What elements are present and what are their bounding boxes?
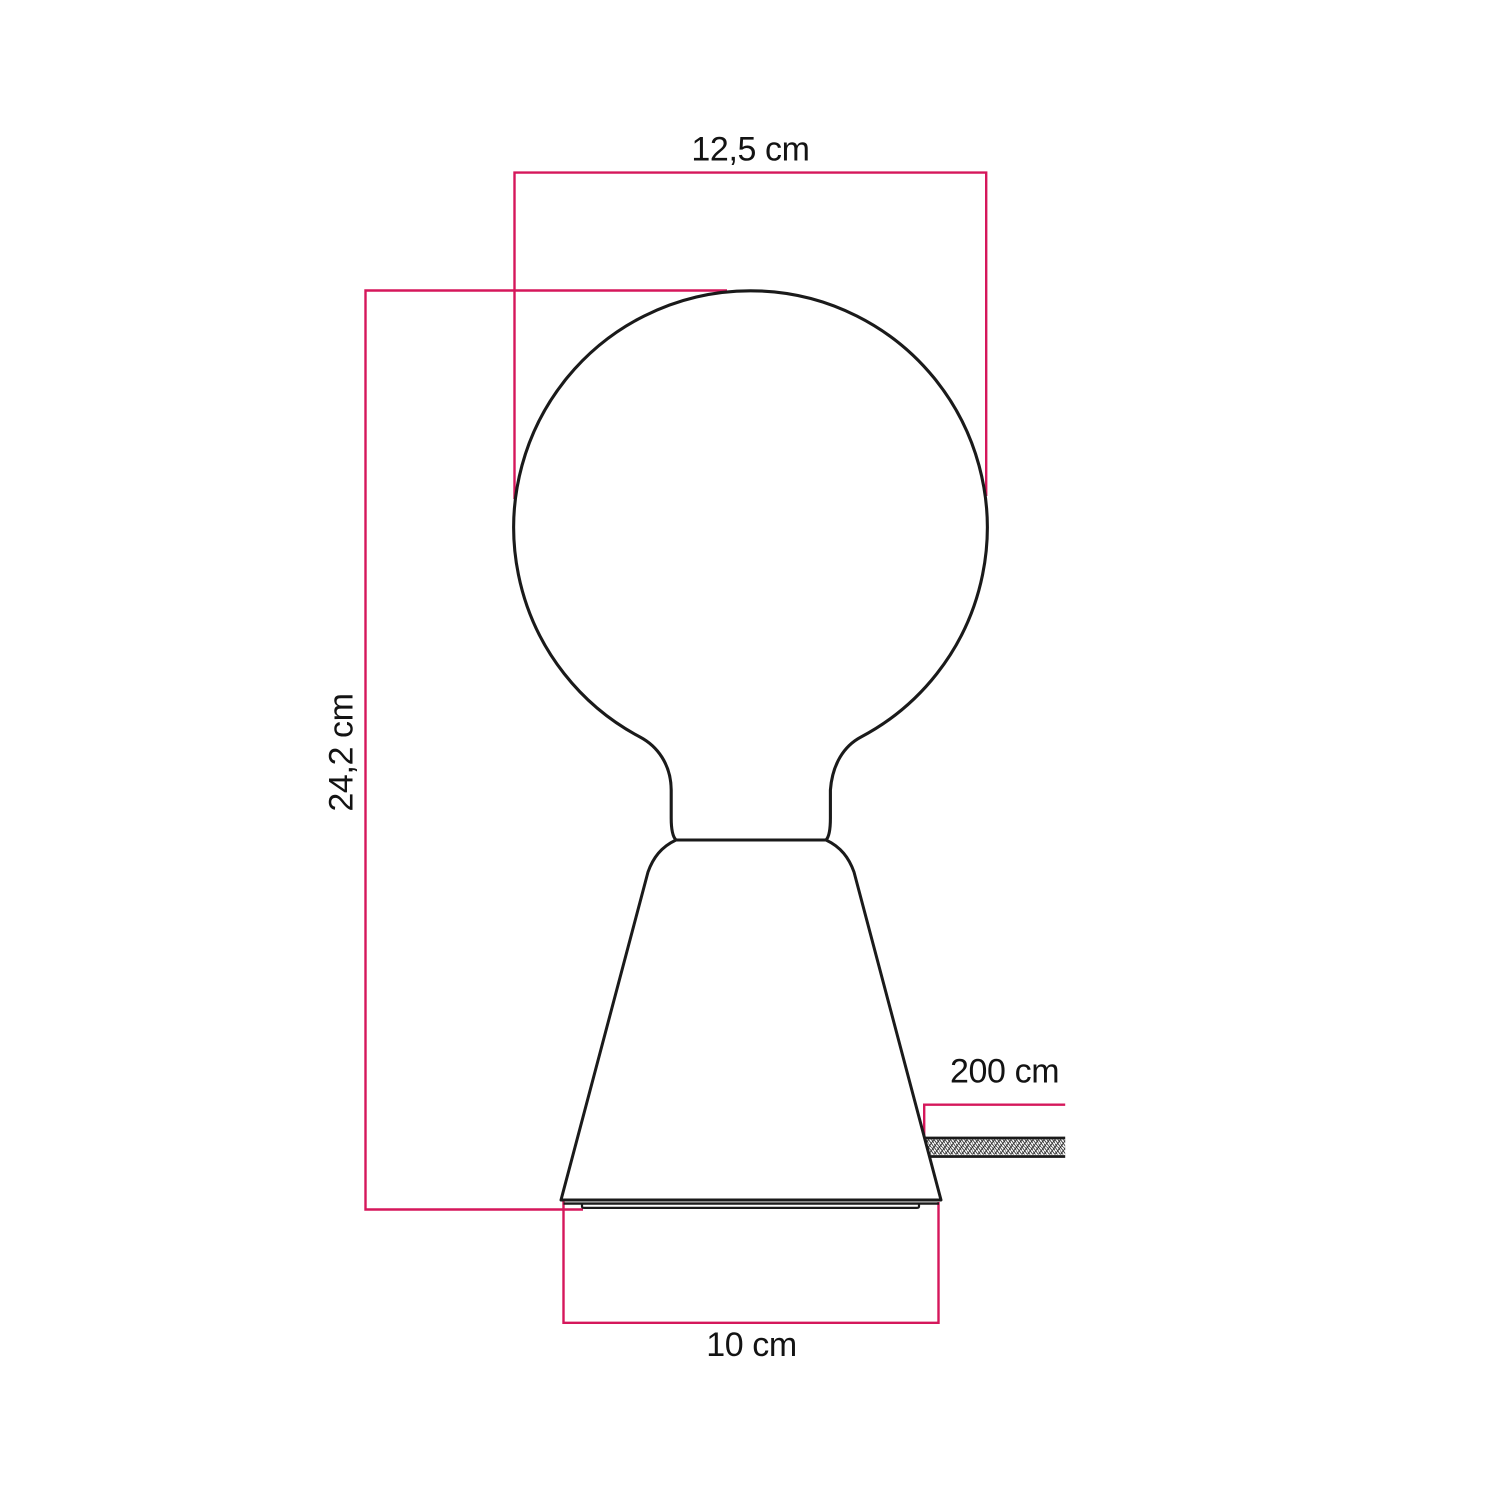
svg-text:200 cm: 200 cm <box>950 1052 1059 1090</box>
svg-text:10 cm: 10 cm <box>706 1326 797 1364</box>
svg-text:24,2 cm: 24,2 cm <box>323 693 361 811</box>
svg-text:12,5 cm: 12,5 cm <box>691 131 809 169</box>
